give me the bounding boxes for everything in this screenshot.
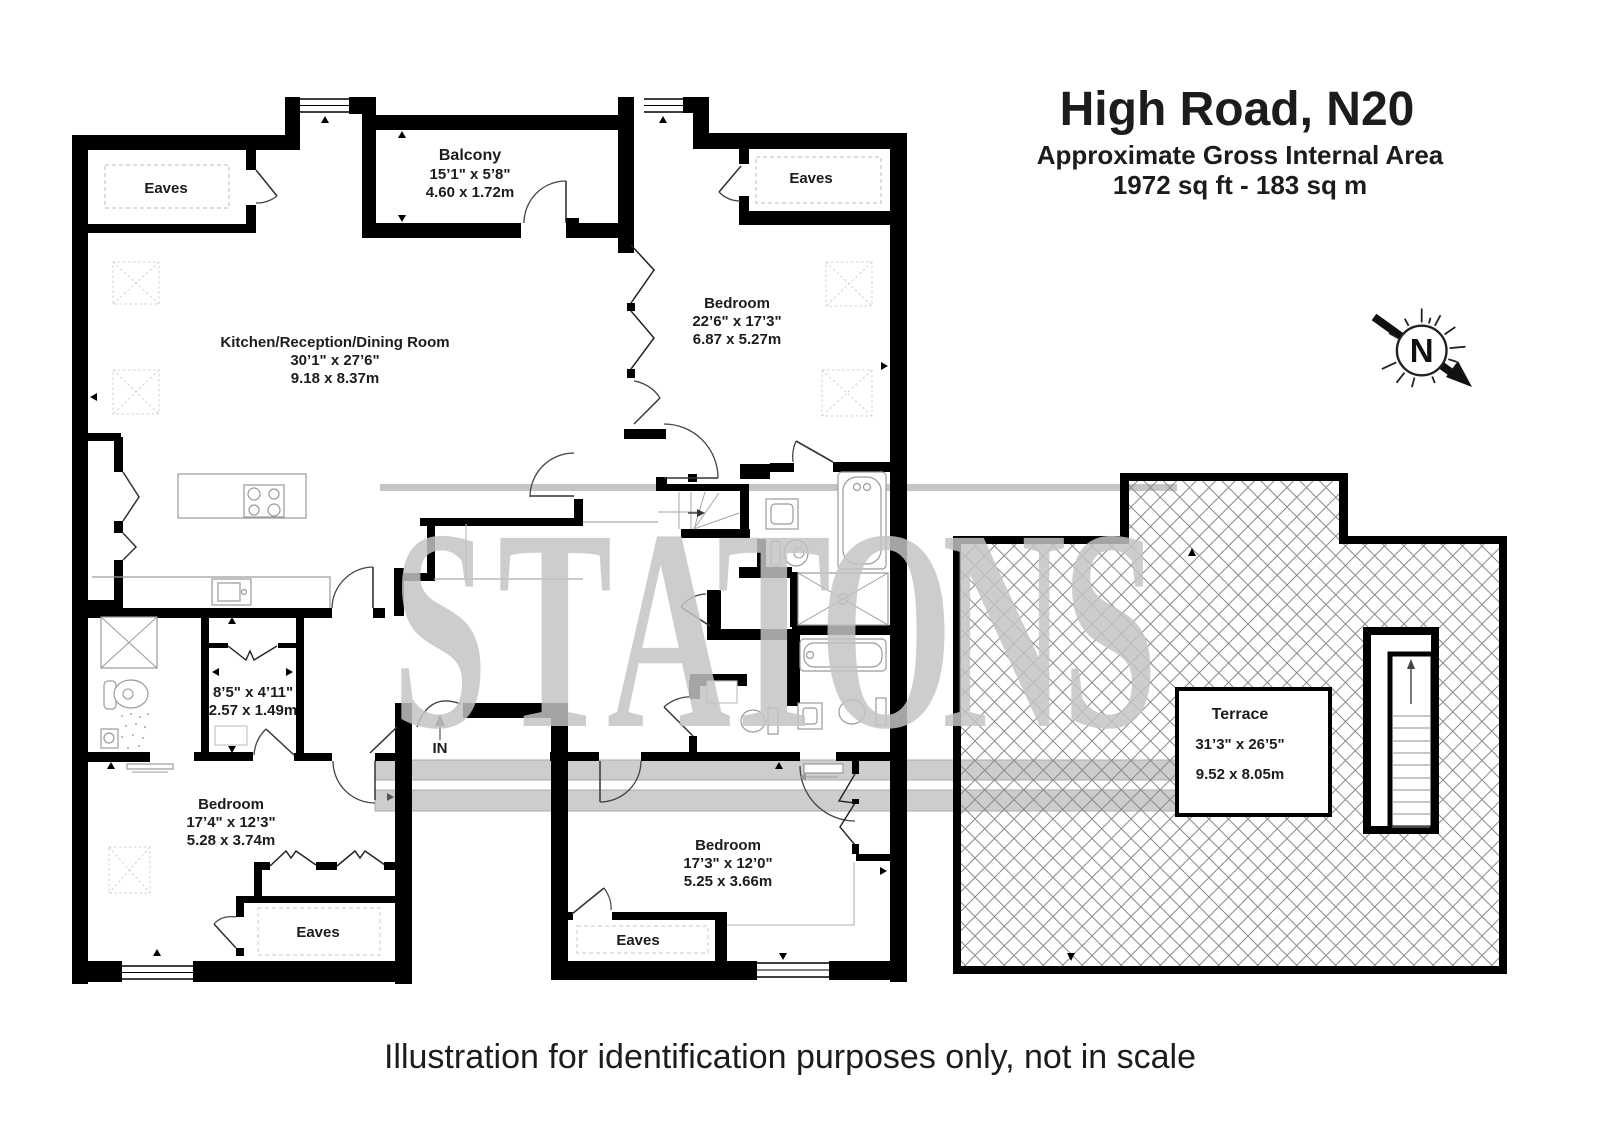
svg-text:Terrace: Terrace	[1212, 706, 1269, 723]
svg-text:Bedroom: Bedroom	[704, 295, 770, 312]
svg-text:Bedroom: Bedroom	[695, 837, 761, 854]
svg-text:Bedroom: Bedroom	[198, 796, 264, 813]
svg-text:N: N	[1410, 332, 1434, 369]
svg-text:N: N	[942, 471, 1066, 789]
svg-text:22’6" x 17’3": 22’6" x 17’3"	[692, 313, 781, 330]
svg-text:9.18 x 8.37m: 9.18 x 8.37m	[291, 370, 379, 387]
svg-text:S: S	[1062, 471, 1158, 789]
svg-text:17’3" x 12’0": 17’3" x 12’0"	[683, 855, 772, 872]
svg-text:T: T	[717, 471, 832, 789]
svg-text:2.57 x 1.49m: 2.57 x 1.49m	[209, 702, 297, 719]
svg-text:A: A	[607, 471, 731, 789]
svg-text:T: T	[498, 471, 613, 789]
svg-text:5.28 x 3.74m: 5.28 x 3.74m	[187, 832, 275, 849]
svg-text:Eaves: Eaves	[789, 170, 832, 187]
svg-text:8’5" x 4’11": 8’5" x 4’11"	[213, 684, 293, 701]
svg-text:30’1" x 27’6": 30’1" x 27’6"	[290, 352, 379, 369]
svg-text:Illustration for identificatio: Illustration for identification purposes…	[384, 1038, 1196, 1076]
svg-text:17’4" x 12’3": 17’4" x 12’3"	[186, 814, 275, 831]
svg-text:31’3" x 26’5": 31’3" x 26’5"	[1195, 736, 1284, 753]
svg-text:6.87 x 5.27m: 6.87 x 5.27m	[693, 331, 781, 348]
svg-text:Eaves: Eaves	[616, 932, 659, 949]
svg-text:9.52 x 8.05m: 9.52 x 8.05m	[1196, 766, 1284, 783]
svg-text:O: O	[819, 471, 953, 789]
svg-text:High Road, N20: High Road, N20	[1060, 83, 1415, 136]
svg-text:Kitchen/Reception/Dining Room: Kitchen/Reception/Dining Room	[220, 334, 449, 351]
svg-text:Eaves: Eaves	[296, 924, 339, 941]
svg-text:S: S	[392, 471, 488, 789]
svg-text:5.25 x 3.66m: 5.25 x 3.66m	[684, 873, 772, 890]
svg-text:Approximate Gross Internal Are: Approximate Gross Internal Area	[1037, 140, 1444, 170]
svg-text:Balcony: Balcony	[439, 147, 501, 164]
svg-text:4.60 x 1.72m: 4.60 x 1.72m	[426, 184, 514, 201]
svg-text:Eaves: Eaves	[144, 180, 187, 197]
svg-text:1972 sq ft - 183 sq m: 1972 sq ft - 183 sq m	[1113, 170, 1367, 200]
svg-text:15’1" x 5’8": 15’1" x 5’8"	[430, 166, 511, 183]
